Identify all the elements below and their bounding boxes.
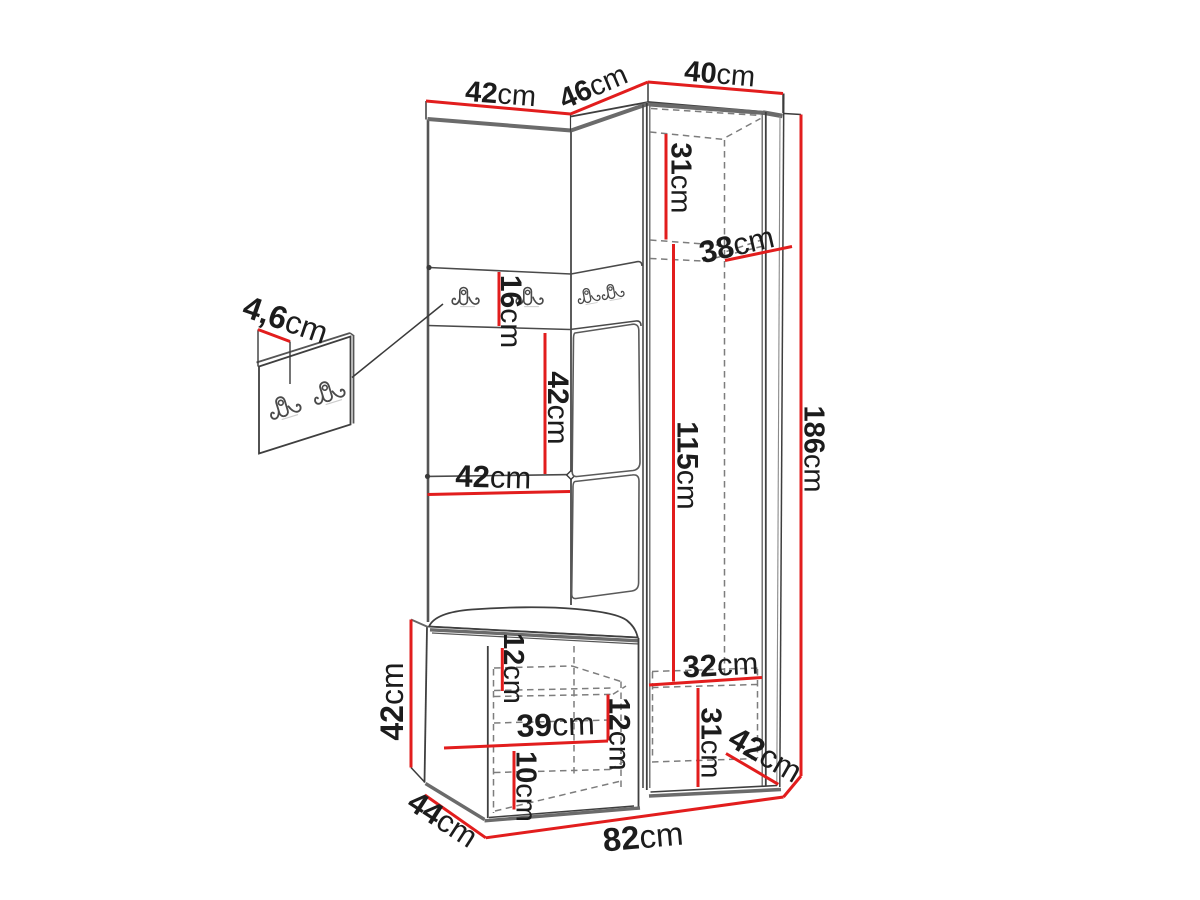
svg-text:40cm: 40cm <box>683 56 756 94</box>
svg-text:186cm: 186cm <box>798 405 830 492</box>
svg-text:42cm: 42cm <box>374 662 410 740</box>
svg-text:42cm: 42cm <box>541 371 574 444</box>
svg-text:12cm: 12cm <box>603 697 636 770</box>
svg-text:12cm: 12cm <box>497 633 529 704</box>
svg-text:115cm: 115cm <box>671 421 704 509</box>
svg-text:16cm: 16cm <box>494 275 527 348</box>
svg-text:10cm: 10cm <box>510 751 542 822</box>
svg-text:42cm: 42cm <box>464 76 537 113</box>
svg-text:31cm: 31cm <box>665 143 697 214</box>
svg-text:31cm: 31cm <box>695 708 727 779</box>
svg-text:82cm: 82cm <box>601 815 685 859</box>
svg-text:32cm: 32cm <box>682 646 760 685</box>
svg-text:42cm: 42cm <box>455 459 532 496</box>
svg-text:39cm: 39cm <box>516 705 595 744</box>
